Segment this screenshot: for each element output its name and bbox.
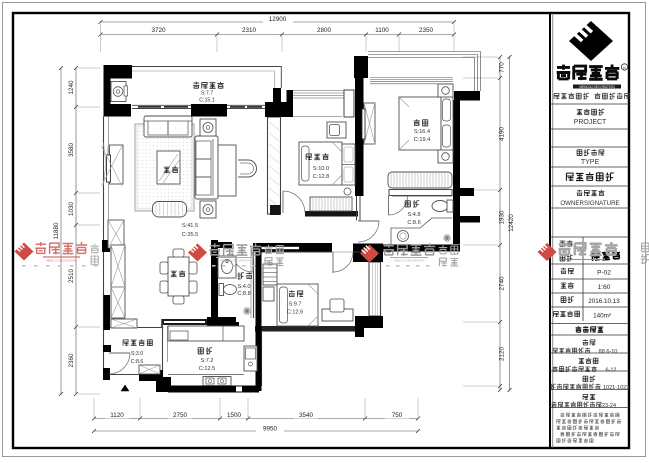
svg-text:770: 770	[499, 62, 506, 73]
svg-text:3720: 3720	[151, 27, 166, 34]
svg-text:6-12: 6-12	[605, 368, 616, 374]
svg-text:4190: 4190	[499, 127, 506, 142]
svg-text:MENGJU DECORATION: MENGJU DECORATION	[579, 85, 615, 89]
svg-text:2310: 2310	[242, 27, 257, 34]
svg-text:S:7.7: S:7.7	[201, 91, 213, 97]
svg-text:C:8.6: C:8.6	[131, 359, 144, 365]
svg-text:C:12.5: C:12.5	[199, 366, 215, 372]
svg-text:1930: 1930	[499, 210, 506, 225]
svg-text:MENG JU DECORATION: MENG JU DECORATION	[46, 259, 76, 263]
svg-text:C:12.6: C:12.6	[287, 310, 303, 316]
svg-text:MENG JU DECORATION: MENG JU DECORATION	[394, 259, 424, 263]
svg-text:1021-1023: 1021-1023	[603, 385, 629, 391]
svg-text:1100: 1100	[375, 27, 389, 34]
svg-text:C:15.1: C:15.1	[199, 98, 215, 104]
svg-text:9950: 9950	[263, 426, 278, 433]
svg-text:C:19.4: C:19.4	[414, 137, 430, 143]
svg-text:C:12.8: C:12.8	[313, 174, 329, 180]
svg-text:S:4.0: S:4.0	[237, 284, 250, 290]
svg-text:23-24: 23-24	[602, 403, 616, 409]
svg-text:S:41.5: S:41.5	[182, 223, 198, 229]
svg-text:P-02: P-02	[597, 270, 611, 277]
svg-text:S:16.4: S:16.4	[414, 129, 430, 135]
svg-text:S:7.2: S:7.2	[200, 358, 213, 364]
svg-text:R: R	[623, 66, 626, 71]
svg-text:1240: 1240	[68, 80, 75, 95]
svg-text:12420: 12420	[508, 214, 515, 232]
svg-text:C:8.6: C:8.6	[407, 220, 420, 226]
svg-text:1500: 1500	[227, 412, 242, 419]
svg-text:2740: 2740	[499, 276, 506, 291]
svg-text:12900: 12900	[269, 16, 287, 23]
svg-text:2750: 2750	[173, 412, 188, 419]
svg-text:2510: 2510	[68, 269, 75, 284]
svg-text:C:8.8: C:8.8	[237, 291, 250, 297]
svg-text:2360: 2360	[68, 353, 75, 368]
svg-text:OWNERSIGNATURE: OWNERSIGNATURE	[560, 200, 619, 207]
svg-text:3540: 3540	[299, 412, 314, 419]
svg-text:2350: 2350	[419, 27, 434, 34]
svg-text:3580: 3580	[68, 143, 75, 158]
svg-text:1030: 1030	[68, 202, 75, 217]
svg-text:140m²: 140m²	[593, 313, 611, 320]
svg-text:2800: 2800	[317, 27, 332, 34]
svg-text:MENG JU DECORATION: MENG JU DECORATION	[220, 259, 250, 263]
svg-text:11880: 11880	[53, 222, 60, 240]
svg-text:88 6-10: 88 6-10	[599, 349, 618, 355]
svg-text:PROJECT: PROJECT	[574, 119, 607, 126]
svg-text:1:60: 1:60	[598, 284, 611, 291]
svg-text:2120: 2120	[499, 347, 506, 362]
svg-text:S:4.8: S:4.8	[407, 212, 420, 218]
svg-text:S:3.0: S:3.0	[131, 351, 143, 357]
svg-text:S:10.0: S:10.0	[313, 166, 329, 172]
svg-text:S:9.7: S:9.7	[288, 302, 301, 308]
svg-text:2016.10.13: 2016.10.13	[588, 298, 620, 305]
svg-text:C:35.5: C:35.5	[182, 232, 198, 238]
svg-text:TYPE: TYPE	[581, 159, 600, 166]
svg-text:1120: 1120	[110, 412, 124, 419]
svg-text:750: 750	[392, 412, 403, 419]
